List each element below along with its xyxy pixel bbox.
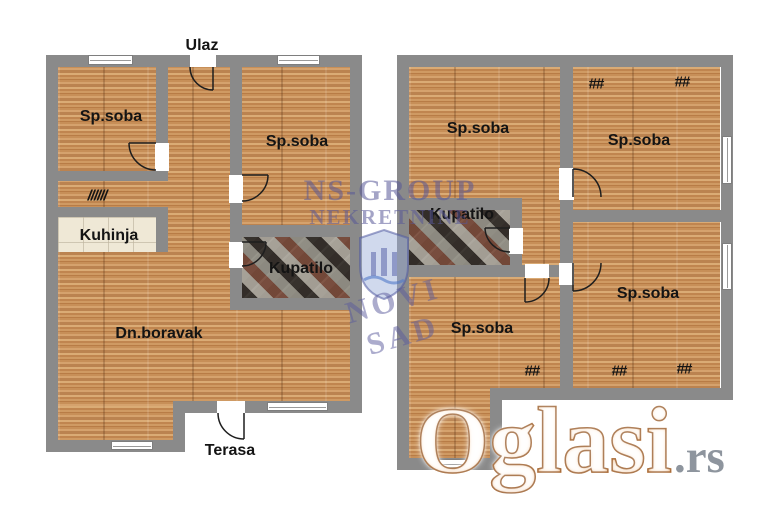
room-label-bedroom: Sp.soba [266, 133, 328, 151]
door-opening-entrance [190, 55, 216, 67]
wall [156, 67, 168, 143]
window [429, 459, 466, 468]
window-hatch-mark: ## [525, 363, 540, 380]
wall [156, 207, 168, 252]
room-label-bedroom: Sp.soba [80, 108, 142, 126]
portal-domain: .rs [674, 431, 725, 483]
vent-hatch-mark: ////// [87, 188, 106, 205]
wall [230, 67, 242, 175]
room-label-living-room: Dn.boravak [115, 325, 202, 343]
room-label-bedroom: Sp.soba [451, 320, 513, 338]
room-label-bathroom: Kupatilo [430, 206, 494, 224]
door-opening [509, 228, 523, 254]
window [88, 55, 133, 65]
door-opening [559, 263, 574, 285]
door-opening [559, 168, 574, 200]
door-opening [229, 242, 243, 268]
wall [510, 210, 522, 228]
door-opening [229, 175, 243, 203]
entrance-label: Ulaz [186, 37, 219, 55]
window-hatch-mark: ## [675, 74, 690, 91]
wall [230, 268, 242, 298]
room-label-bedroom: Sp.soba [447, 120, 509, 138]
window [277, 55, 320, 65]
window-hatch-mark: ## [677, 361, 692, 378]
wall [230, 298, 362, 310]
room-label-bedroom: Sp.soba [608, 132, 670, 150]
door-arc [218, 413, 244, 439]
wall [560, 210, 733, 222]
door-opening [525, 264, 549, 278]
wall [397, 265, 525, 277]
door-opening-terrace [217, 401, 245, 413]
window [722, 243, 732, 290]
window [722, 136, 732, 184]
room-label-bedroom: Sp.soba [617, 285, 679, 303]
terrace-label: Terasa [205, 442, 255, 460]
wall [230, 225, 362, 237]
wall [492, 388, 733, 400]
wall [58, 171, 168, 181]
wood-floor [409, 400, 495, 460]
window [111, 441, 153, 450]
wall [721, 55, 733, 400]
window [267, 402, 328, 411]
wall [397, 55, 409, 470]
room-label-bathroom: Kupatilo [269, 260, 333, 278]
wall [58, 207, 168, 217]
floor-plan-image: Ulaz Sp.soba Sp.soba ////// Kuhinja Kupa… [0, 0, 779, 516]
wall [397, 55, 733, 67]
window-hatch-mark: ## [589, 76, 604, 93]
wall [510, 254, 522, 265]
wall [560, 285, 573, 388]
room-label-kitchen: Kuhinja [80, 227, 139, 245]
wall [46, 55, 58, 452]
wall [560, 67, 573, 168]
window-hatch-mark: ## [612, 363, 627, 380]
door-opening [155, 143, 169, 171]
